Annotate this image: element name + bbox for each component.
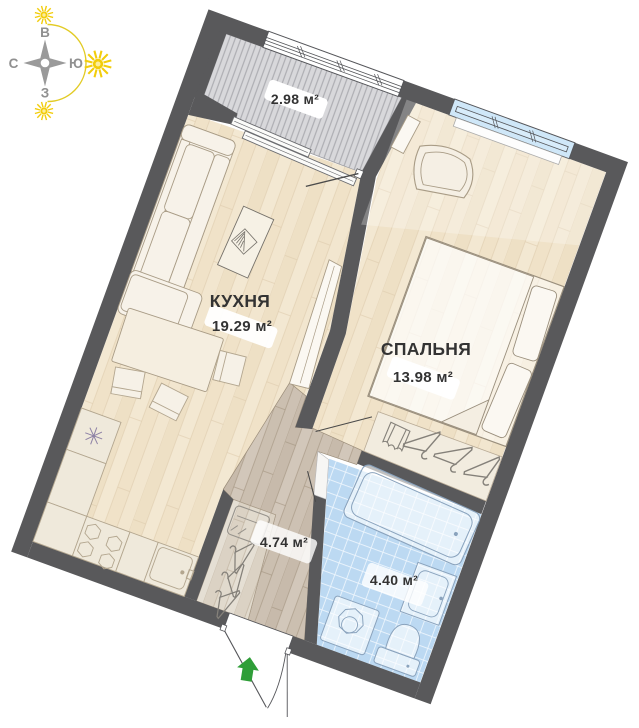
svg-text:Ю: Ю	[69, 56, 83, 71]
svg-text:4.74 м²: 4.74 м²	[260, 534, 308, 550]
svg-text:СПАЛЬНЯ: СПАЛЬНЯ	[381, 339, 471, 359]
svg-text:2.98 м²: 2.98 м²	[271, 91, 319, 107]
svg-text:З: З	[41, 86, 49, 101]
svg-text:4.40 м²: 4.40 м²	[370, 572, 418, 588]
svg-text:19.29 м²: 19.29 м²	[212, 318, 272, 335]
svg-text:13.98 м²: 13.98 м²	[393, 369, 453, 386]
svg-text:КУХНЯ: КУХНЯ	[210, 291, 270, 311]
svg-text:С: С	[9, 56, 19, 71]
svg-text:В: В	[40, 25, 50, 40]
